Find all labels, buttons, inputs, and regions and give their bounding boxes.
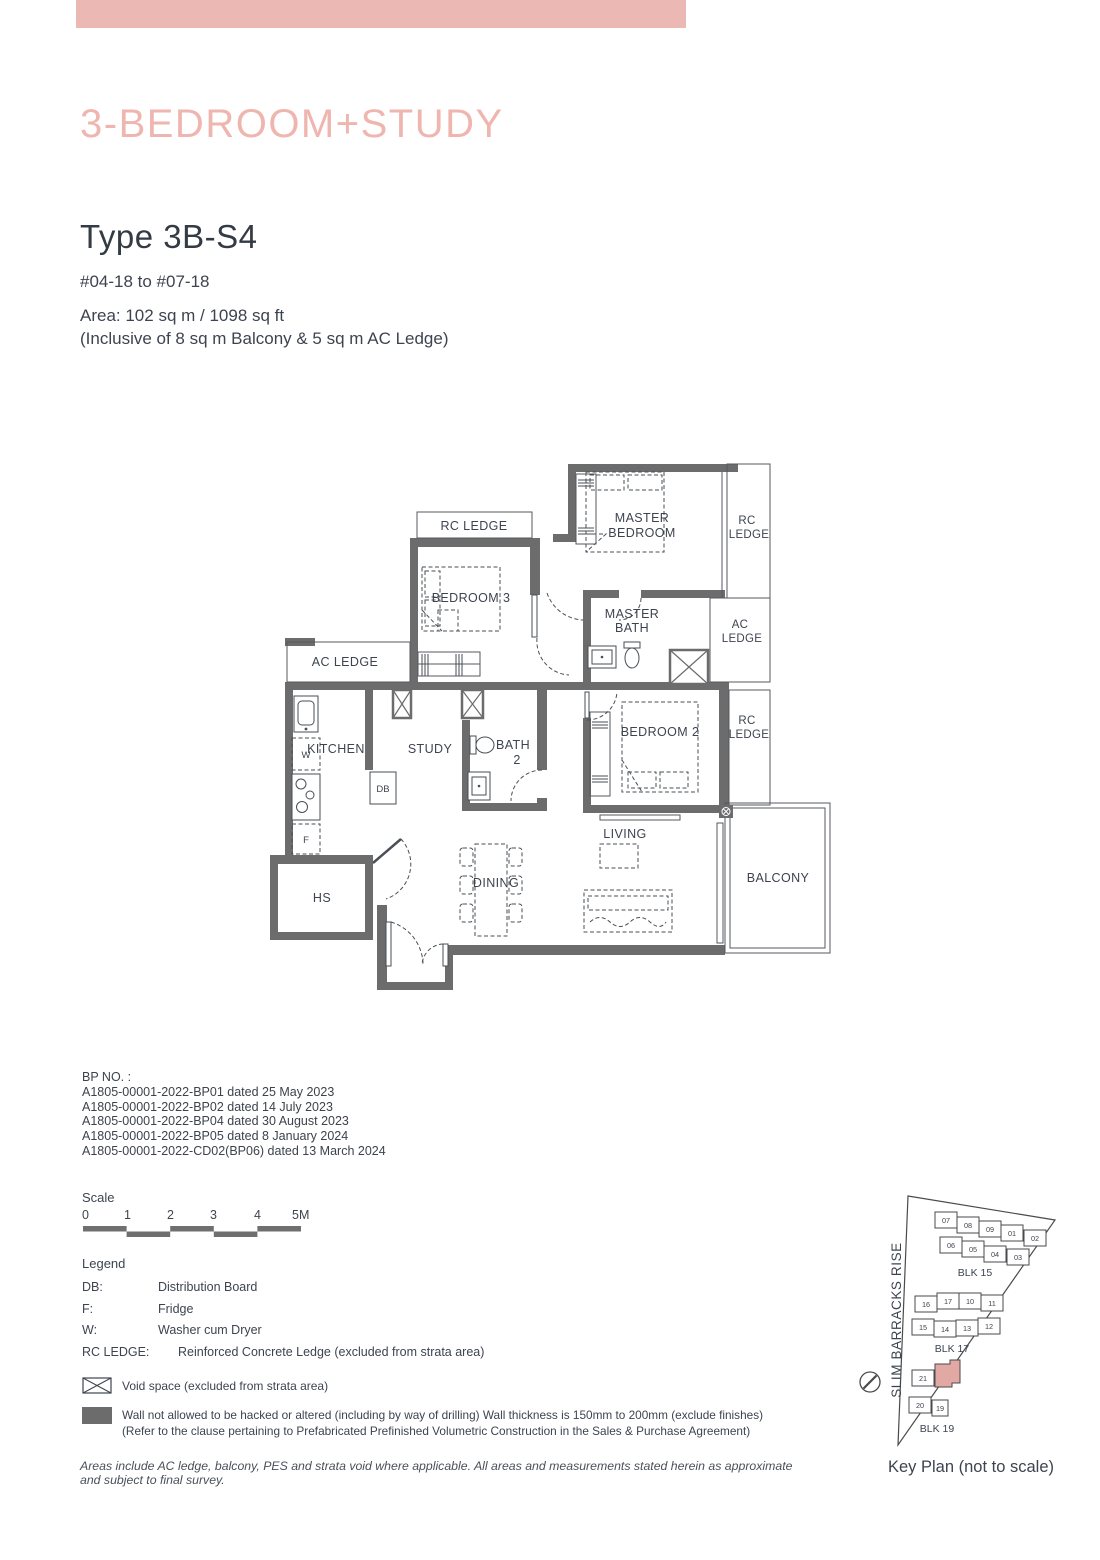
room-label-dining: DINING xyxy=(473,876,519,890)
room-label-kitchen: KITCHEN xyxy=(307,742,365,756)
unit-number: 02 xyxy=(1031,1234,1039,1243)
wall-legend-row: Wall not allowed to be hacked or altered… xyxy=(82,1407,763,1439)
unit-number: 07 xyxy=(942,1216,950,1225)
room-label-ac-right-1: AC xyxy=(732,619,749,631)
room-label-bedroom2: BEDROOM 2 xyxy=(621,725,700,739)
street-label: SLIM BARRACKS RISE xyxy=(889,1242,904,1398)
north-compass-icon xyxy=(860,1372,880,1392)
unit-number: 11 xyxy=(988,1299,996,1308)
bedroom2-wardrobe xyxy=(590,712,610,796)
key-plan: 07 08 09 01 02 06 05 04 03 BLK 15 16 17 … xyxy=(855,1192,1090,1454)
room-label-bath2-1: BATH xyxy=(496,738,530,752)
legend-heading: Legend xyxy=(82,1256,125,1271)
scale-ticks: 0 1 2 3 4 5M xyxy=(82,1208,312,1222)
bedroom3-wardrobe xyxy=(418,652,480,676)
room-label-master-2: BEDROOM xyxy=(608,526,675,540)
bedroom2-bed xyxy=(622,702,698,792)
unit-number: 14 xyxy=(941,1325,949,1334)
page-title: 3-BEDROOM+STUDY xyxy=(80,102,504,147)
floor-range: #04-18 to #07-18 xyxy=(80,272,210,292)
wall-note-1: Wall not allowed to be hacked or altered… xyxy=(122,1407,763,1423)
room-label-master-bath-2: BATH xyxy=(615,621,649,635)
unit-number: 16 xyxy=(922,1300,930,1309)
floor-plan: RC LEDGE MASTER BEDROOM RC LEDGE BEDROOM… xyxy=(270,450,850,1010)
blk17-label: BLK 17 xyxy=(935,1343,970,1355)
master-bedroom-door xyxy=(547,593,583,620)
unit-number: 10 xyxy=(966,1297,974,1306)
unit-number: 13 xyxy=(963,1324,971,1333)
bp-line: A1805-00001-2022-BP01 dated 25 May 2023 xyxy=(82,1085,386,1100)
living-table xyxy=(600,844,638,868)
master-bath-toilet xyxy=(624,642,640,668)
room-label-rc-right-bottom-1: RC xyxy=(738,715,755,727)
scale-label: Scale xyxy=(82,1190,115,1205)
key-plan-caption: Key Plan (not to scale) xyxy=(840,1458,1100,1477)
legend-row: DB: Distribution Board xyxy=(82,1280,484,1294)
void-legend-row: Void space (excluded from strata area) xyxy=(82,1377,328,1394)
unit-number: 21 xyxy=(919,1374,927,1383)
room-label-rc-right-top-2: LEDGE xyxy=(729,529,770,541)
bedroom3-door xyxy=(532,595,569,675)
ledge-outlines xyxy=(287,464,770,820)
room-label-rc-ledge-top: RC LEDGE xyxy=(440,519,507,533)
room-label-rc-right-bottom-2: LEDGE xyxy=(729,729,770,741)
master-wardrobe xyxy=(576,474,596,544)
legend-row: RC LEDGE: Reinforced Concrete Ledge (exc… xyxy=(82,1345,484,1359)
kitchen-sink xyxy=(294,696,318,732)
unit-number: 09 xyxy=(986,1225,994,1234)
entrance-door xyxy=(386,922,448,966)
bp-line: A1805-00001-2022-BP02 dated 14 July 2023 xyxy=(82,1100,386,1115)
legend: DB: Distribution Board F: Fridge W: Wash… xyxy=(82,1280,484,1366)
unit-number: 06 xyxy=(947,1241,955,1250)
hob xyxy=(292,774,320,820)
bp-heading: BP NO. : xyxy=(82,1070,386,1085)
room-label-bath2-2: 2 xyxy=(513,753,520,767)
unit-number: 04 xyxy=(991,1250,999,1259)
bath2-toilet xyxy=(470,736,494,754)
room-label-rc-right-top-1: RC xyxy=(738,515,755,527)
blk19-cluster: 21 20 19 BLK 19 xyxy=(909,1360,960,1435)
legend-term: W: xyxy=(82,1323,158,1337)
scale-tick: 5M xyxy=(292,1208,309,1222)
unit-number: 15 xyxy=(919,1323,927,1332)
legend-row: W: Washer cum Dryer xyxy=(82,1323,484,1337)
dining-table xyxy=(460,844,522,936)
room-label-living: LIVING xyxy=(603,827,646,841)
legend-term: DB: xyxy=(82,1280,158,1294)
disclaimer: Areas include AC ledge, balcony, PES and… xyxy=(80,1459,810,1487)
scale-tick: 2 xyxy=(167,1208,174,1222)
room-label-master-bath-1: MASTER xyxy=(605,607,660,621)
unit-number: 20 xyxy=(916,1401,924,1410)
label-f: F xyxy=(303,835,309,846)
blk19-label: BLK 19 xyxy=(920,1423,955,1435)
room-label-study: STUDY xyxy=(408,742,453,756)
void-space-icon xyxy=(82,1377,112,1394)
legend-desc: Reinforced Concrete Ledge (excluded from… xyxy=(178,1345,484,1359)
legend-desc: Fridge xyxy=(158,1302,193,1316)
unit-number: 05 xyxy=(969,1245,977,1254)
bath2-sink xyxy=(468,772,490,800)
unit-number: 01 xyxy=(1008,1229,1016,1238)
bp-line: A1805-00001-2022-BP04 dated 30 August 20… xyxy=(82,1114,386,1129)
legend-row: F: Fridge xyxy=(82,1302,484,1316)
unit-number: 03 xyxy=(1014,1253,1022,1262)
void-note: Void space (excluded from strata area) xyxy=(122,1379,328,1393)
scale-tick: 0 xyxy=(82,1208,89,1222)
unit-number: 19 xyxy=(936,1404,944,1413)
legend-desc: Washer cum Dryer xyxy=(158,1323,262,1337)
room-label-ac-left: AC LEDGE xyxy=(312,655,378,669)
room-label-ac-right-2: LEDGE xyxy=(722,633,763,645)
legend-desc: Distribution Board xyxy=(158,1280,257,1294)
label-db: DB xyxy=(376,784,389,795)
scale-tick: 4 xyxy=(254,1208,261,1222)
legend-term: RC LEDGE: xyxy=(82,1345,178,1359)
scale-tick: 3 xyxy=(210,1208,217,1222)
room-label-balcony: BALCONY xyxy=(747,871,810,885)
sofa xyxy=(584,890,672,932)
highlighted-unit xyxy=(935,1360,960,1387)
unit-number: 17 xyxy=(944,1297,952,1306)
scale-bar xyxy=(83,1226,302,1238)
top-banner xyxy=(76,0,686,28)
room-label-master-1: MASTER xyxy=(615,511,670,525)
unit-number: 12 xyxy=(985,1322,993,1331)
unit-type-title: Type 3B-S4 xyxy=(80,218,257,256)
room-label-hs: HS xyxy=(313,891,331,905)
master-bath-sink xyxy=(588,646,616,668)
bp-line: A1805-00001-2022-CD02(BP06) dated 13 Mar… xyxy=(82,1144,386,1159)
area-line-1: Area: 102 sq m / 1098 sq ft xyxy=(80,306,284,326)
wall-swatch-icon xyxy=(82,1407,112,1424)
hs-door xyxy=(373,839,411,899)
bp-numbers: BP NO. : A1805-00001-2022-BP01 dated 25 … xyxy=(82,1070,386,1159)
bath2-door xyxy=(511,770,542,801)
unit-number: 08 xyxy=(964,1221,972,1230)
wall-note-2: (Refer to the clause pertaining to Prefa… xyxy=(122,1423,763,1439)
blk15-label: BLK 15 xyxy=(958,1267,993,1279)
label-w: W xyxy=(302,750,311,761)
area-line-2: (Inclusive of 8 sq m Balcony & 5 sq m AC… xyxy=(80,329,449,349)
scale-tick: 1 xyxy=(124,1208,131,1222)
legend-term: F: xyxy=(82,1302,158,1316)
room-label-bedroom3: BEDROOM 3 xyxy=(432,591,511,605)
bp-line: A1805-00001-2022-BP05 dated 8 January 20… xyxy=(82,1129,386,1144)
